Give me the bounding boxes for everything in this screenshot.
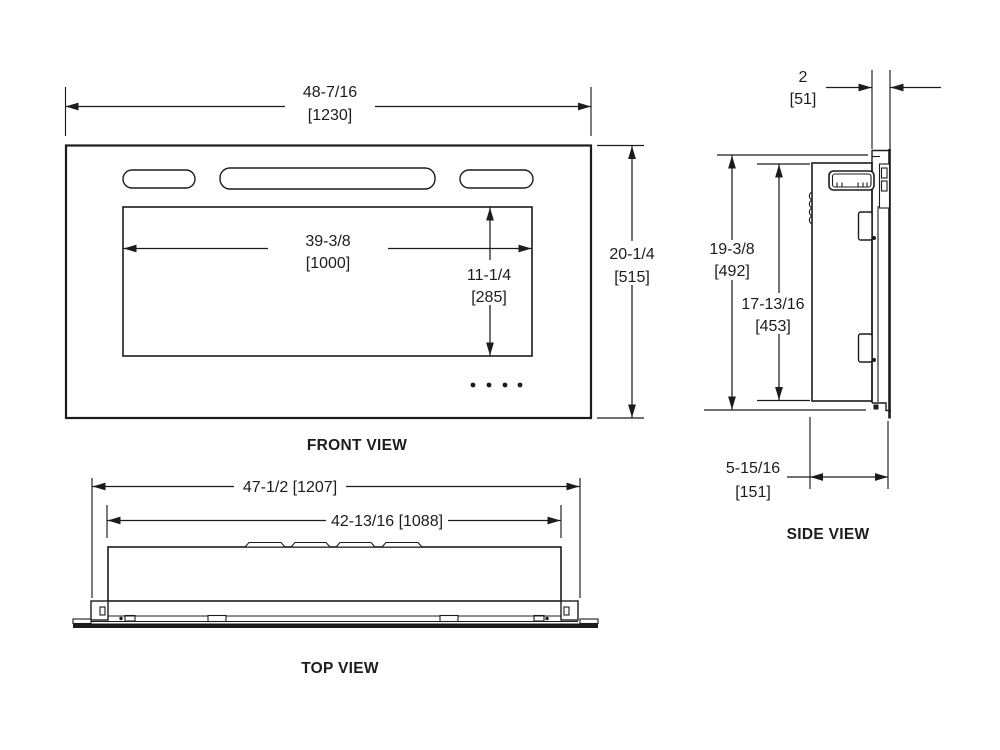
top-flange-assembly (73, 601, 598, 628)
front-dim-overall-width: 48-7/16 [1230] (66, 84, 592, 136)
front-view: 48-7/16 [1230] 20-1/4 [515] 39-3/8 [1000… (66, 84, 661, 454)
dim-text-metric: [515] (614, 269, 650, 286)
dim-text-metric: [492] (714, 263, 750, 280)
top-view: 47-1/2 [1207] 42-13/16 [1088] (73, 478, 598, 677)
base-lip-left (73, 619, 91, 624)
mounting-clip (859, 334, 873, 362)
trim-screw (119, 617, 122, 620)
dim-text-metric: [285] (471, 289, 507, 306)
dim-text-metric: [1000] (306, 255, 350, 272)
dim-text-imperial: 39-3/8 (305, 233, 350, 250)
dim-text-imperial: 17-13/16 (741, 296, 804, 313)
front-flange-panel (872, 149, 891, 419)
front-view-label: FRONT VIEW (307, 437, 407, 454)
side-view-label: SIDE VIEW (787, 526, 870, 543)
top-view-label: TOP VIEW (301, 660, 379, 677)
indicator-dot (487, 383, 492, 388)
side-dim-recess-depth: 5-15/16 [151] (726, 417, 888, 501)
tab (291, 543, 330, 548)
base-trim-bar (73, 624, 598, 629)
dim-text-imperial: 20-1/4 (609, 246, 654, 263)
indicator-dot (518, 383, 523, 388)
dim-text-imperial: 2 (799, 69, 808, 86)
indicator-dot (503, 383, 508, 388)
top-body (108, 547, 561, 601)
base-lip-right (580, 619, 598, 624)
front-dim-overall-height: 20-1/4 [515] (597, 146, 660, 419)
dim-text-imperial: 19-3/8 (709, 241, 754, 258)
dim-text-imperial: 5-15/16 (726, 460, 780, 477)
tab (382, 543, 422, 548)
side-dim-protrusion-depth: 2 [51] (790, 69, 941, 149)
clip-screw (872, 236, 876, 240)
dim-text-imperial: 11-1/4 (467, 267, 511, 284)
trim-screw (545, 617, 548, 620)
indicator-dot (471, 383, 476, 388)
dim-text: 42-13/16 [1088] (331, 513, 443, 530)
trim-clip (208, 616, 226, 622)
side-body (812, 163, 872, 401)
dim-text-metric: [1230] (308, 107, 352, 124)
fireplace-dimension-drawing: 48-7/16 [1230] 20-1/4 [515] 39-3/8 [1000… (0, 0, 1000, 750)
dim-text-imperial: 48-7/16 (303, 84, 357, 101)
mounting-clip (859, 212, 873, 240)
trim-clip (440, 616, 458, 622)
flange-bottom-block (874, 405, 879, 410)
dim-text-metric: [453] (755, 318, 791, 335)
dim-text-metric: [151] (735, 484, 771, 501)
heater-outlet (829, 171, 874, 190)
side-view: 2 [51] 19-3/8 [492] 17-13/16 [453] (703, 69, 941, 543)
dim-text-metric: [51] (790, 91, 817, 108)
dim-text: 47-1/2 [1207] (243, 479, 337, 496)
top-dim-body-width: 42-13/16 [1088] (107, 505, 561, 538)
tab (245, 543, 285, 548)
side-dim-body-height: 17-13/16 [453] (735, 164, 811, 401)
clip-screw (872, 358, 876, 362)
tab (336, 543, 375, 548)
